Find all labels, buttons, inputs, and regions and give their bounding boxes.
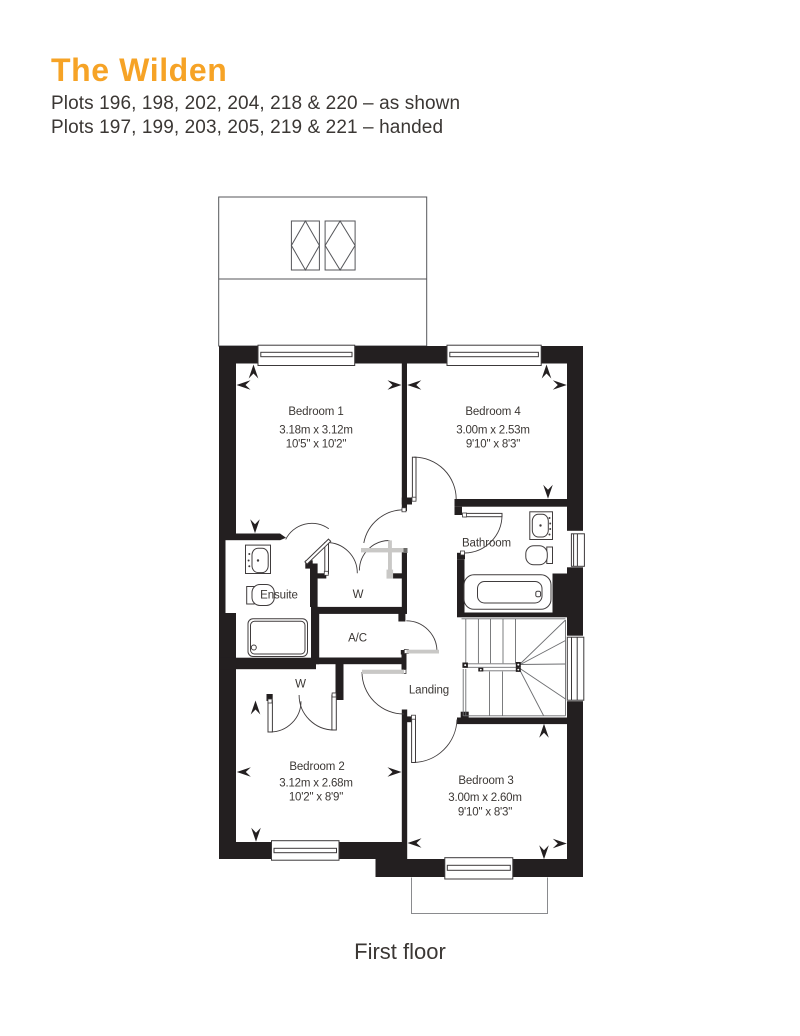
svg-text:Bedroom 1: Bedroom 1 [288,406,343,418]
svg-text:A/C: A/C [348,633,367,645]
svg-text:10'2" x 8'9": 10'2" x 8'9" [289,792,343,804]
svg-text:W: W [353,589,364,601]
svg-text:3.00m x 2.53m: 3.00m x 2.53m [456,425,529,437]
svg-text:W: W [295,679,306,691]
svg-text:10'5" x 10'2": 10'5" x 10'2" [286,438,347,450]
svg-text:Ensuite: Ensuite [260,590,298,602]
svg-text:Bedroom 3: Bedroom 3 [458,775,513,787]
svg-text:3.18m x 3.12m: 3.18m x 3.12m [279,425,352,437]
svg-text:Bathroom: Bathroom [462,538,511,550]
svg-text:3.12m x 2.68m: 3.12m x 2.68m [279,778,352,790]
svg-text:9'10" x 8'3": 9'10" x 8'3" [466,438,520,450]
svg-text:Landing: Landing [409,685,449,697]
svg-text:3.00m x 2.60m: 3.00m x 2.60m [448,792,521,804]
svg-text:Bedroom 4: Bedroom 4 [465,406,521,418]
svg-text:Bedroom 2: Bedroom 2 [289,761,344,773]
svg-text:9'10" x 8'3": 9'10" x 8'3" [458,807,512,819]
